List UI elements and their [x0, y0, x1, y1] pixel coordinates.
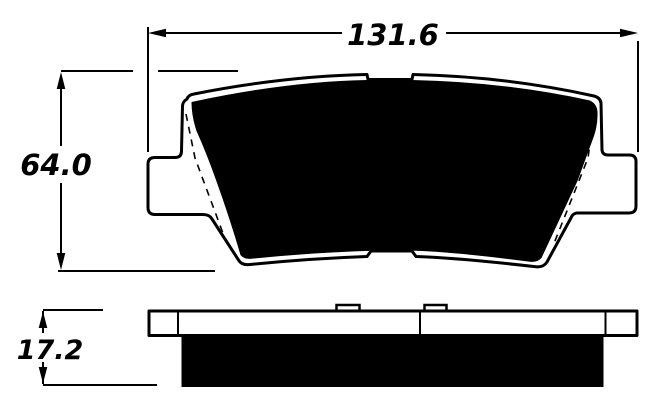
side-backing-plate [149, 311, 637, 336]
side-friction-block [182, 337, 604, 387]
brake-pad-drawing: 131.6 64.0 17.2 [0, 0, 672, 414]
width-arrow-right [620, 29, 638, 38]
thickness-arrow-down [39, 367, 48, 384]
thickness-arrow-up [39, 312, 48, 329]
front-view [148, 75, 636, 267]
dimension-thickness: 17.2 [17, 310, 157, 385]
height-arrow-down [57, 253, 66, 270]
width-arrow-left [148, 29, 166, 38]
thickness-dim-value: 17.2 [17, 335, 84, 366]
height-arrow-up [57, 72, 66, 89]
technical-drawing: 131.6 64.0 17.2 [0, 0, 672, 414]
friction-material [192, 80, 598, 262]
side-view [149, 305, 637, 387]
width-dim-value: 131.6 [347, 18, 439, 52]
height-dim-value: 64.0 [20, 148, 92, 182]
